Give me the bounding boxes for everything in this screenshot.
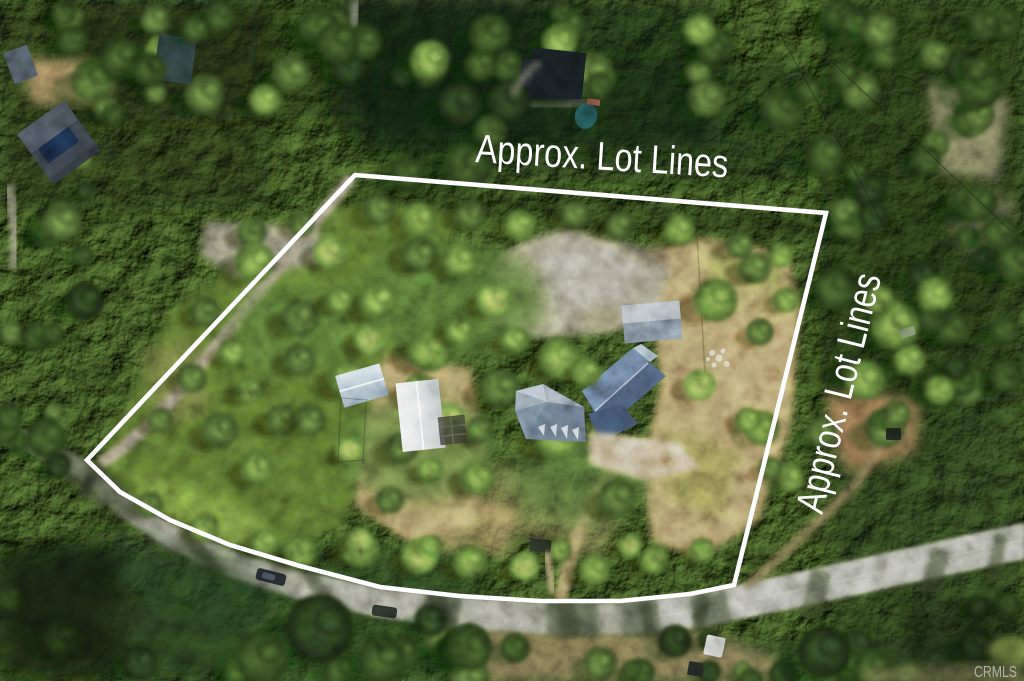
svg-text:CRMLS: CRMLS xyxy=(974,664,1017,681)
